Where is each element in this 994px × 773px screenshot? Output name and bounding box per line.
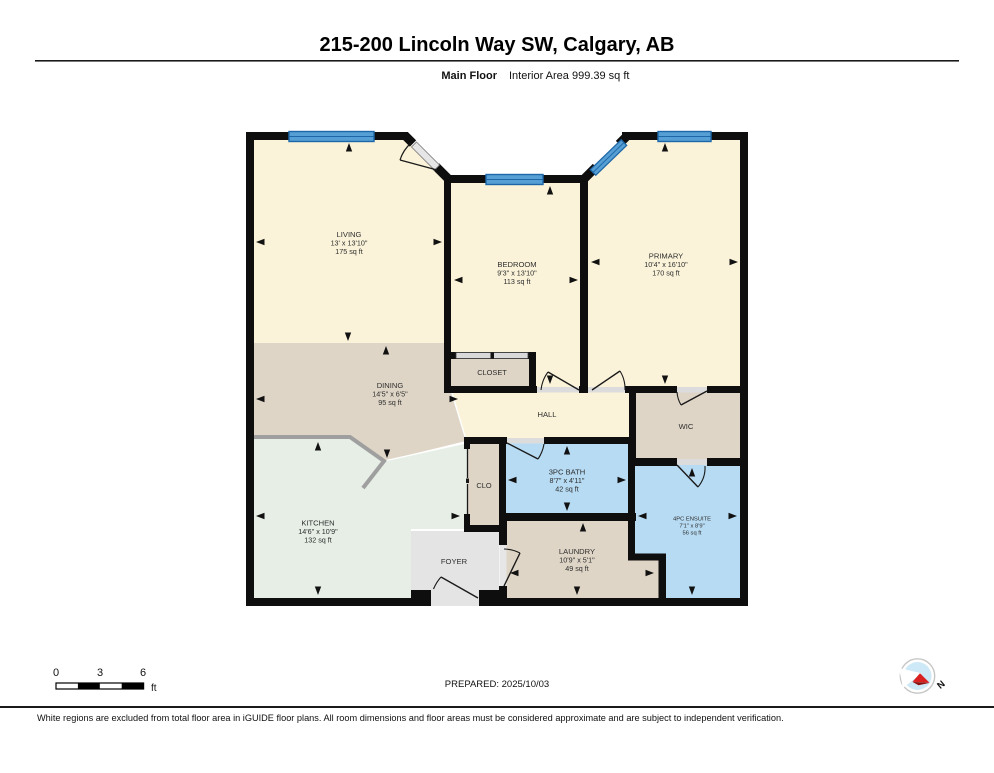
svg-text:3: 3	[97, 667, 103, 679]
svg-text:DINING: DINING	[377, 381, 404, 390]
svg-text:132 sq ft: 132 sq ft	[304, 536, 332, 545]
svg-text:CLOSET: CLOSET	[477, 368, 507, 377]
svg-text:215-200 Lincoln Way SW, Calgar: 215-200 Lincoln Way SW, Calgary, AB	[320, 34, 675, 56]
svg-text:42 sq ft: 42 sq ft	[555, 484, 579, 493]
svg-text:White regions are excluded fro: White regions are excluded from total fl…	[37, 713, 784, 723]
svg-text:PREPARED: 2025/10/03: PREPARED: 2025/10/03	[445, 679, 549, 690]
svg-text:BEDROOM: BEDROOM	[497, 260, 536, 269]
svg-text:175 sq ft: 175 sq ft	[335, 247, 363, 256]
svg-text:49 sq ft: 49 sq ft	[565, 564, 589, 573]
svg-text:4PC ENSUITE: 4PC ENSUITE	[673, 517, 711, 523]
svg-text:KITCHEN: KITCHEN	[301, 519, 334, 528]
svg-text:CLO: CLO	[476, 481, 491, 490]
svg-text:170 sq ft: 170 sq ft	[652, 269, 680, 278]
svg-text:56 sq ft: 56 sq ft	[682, 531, 701, 537]
svg-text:WIC: WIC	[679, 422, 694, 431]
svg-text:113 sq ft: 113 sq ft	[503, 277, 530, 286]
svg-text:ft: ft	[151, 683, 157, 694]
svg-text:N: N	[935, 679, 947, 692]
svg-text:95 sq ft: 95 sq ft	[378, 398, 402, 407]
svg-text:LAUNDRY: LAUNDRY	[559, 547, 595, 556]
svg-text:0: 0	[53, 667, 59, 679]
svg-text:PRIMARY: PRIMARY	[649, 252, 683, 261]
svg-text:LIVING: LIVING	[337, 230, 362, 239]
svg-text:FOYER: FOYER	[441, 557, 468, 566]
svg-text:7'1" x 8'9": 7'1" x 8'9"	[679, 524, 704, 530]
svg-text:6: 6	[140, 667, 146, 679]
svg-text:Main Floor: Main Floor	[441, 70, 497, 82]
svg-text:Interior Area 999.39 sq ft: Interior Area 999.39 sq ft	[509, 70, 629, 82]
svg-text:HALL: HALL	[538, 410, 557, 419]
